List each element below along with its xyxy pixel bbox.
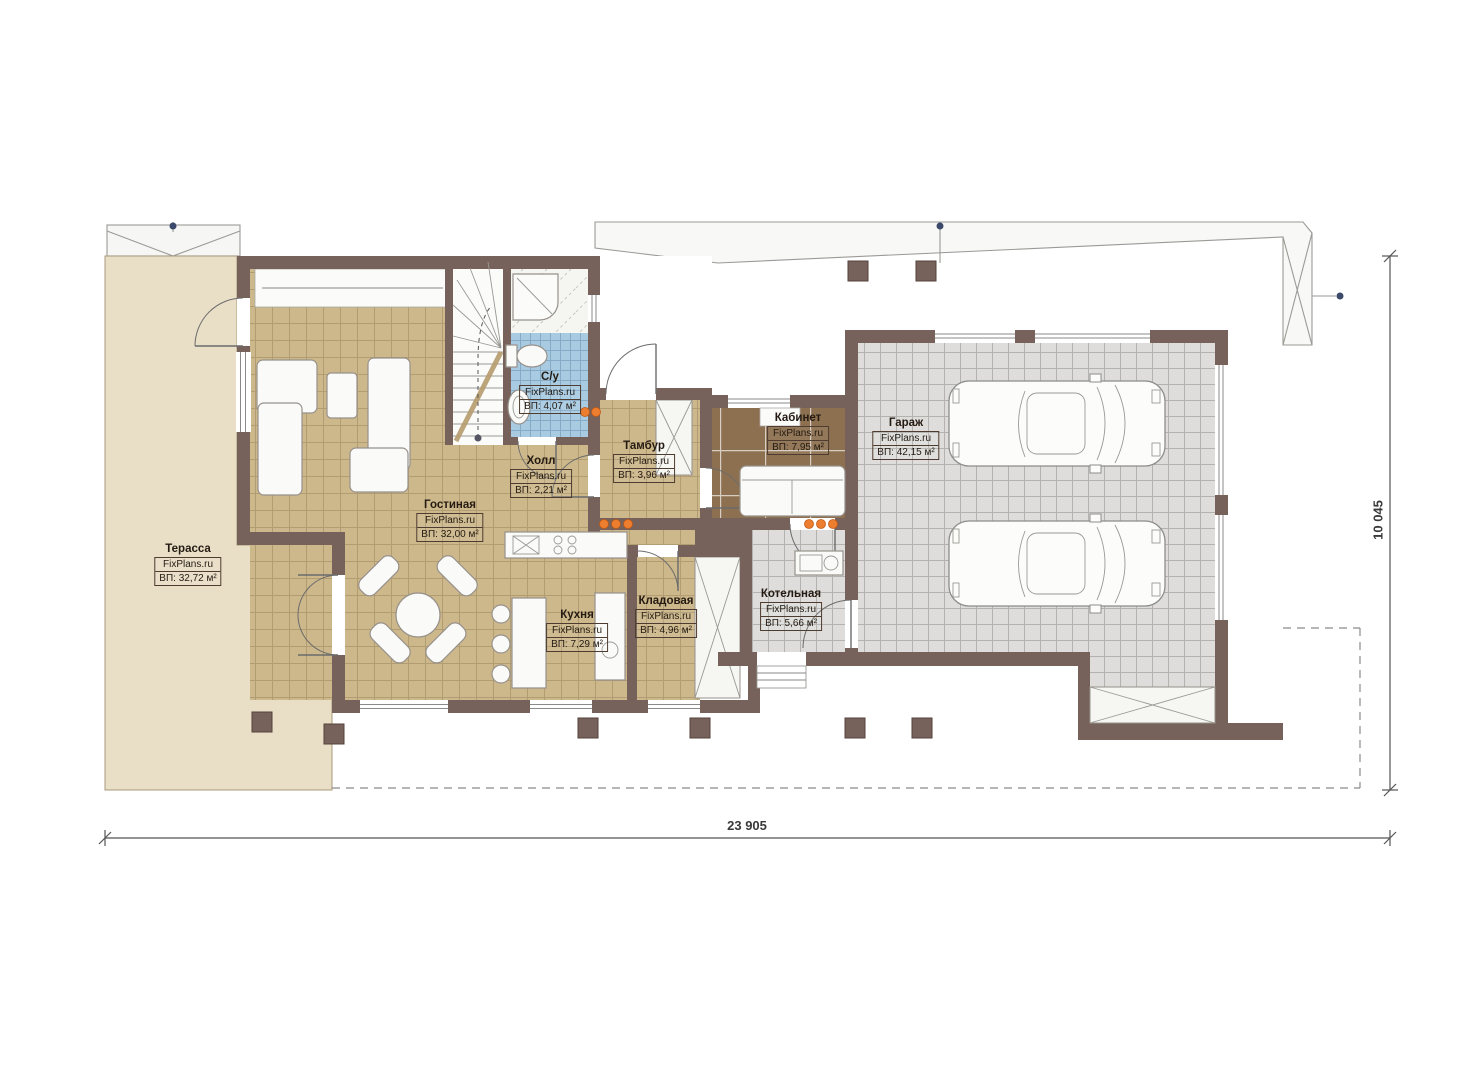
room-area: ВП: 7,95 м² [768,441,828,454]
room-name: Гостиная [416,499,483,512]
dining-table [396,593,440,637]
watermark-text: FixPlans.ru [417,514,482,528]
toilet [517,345,547,367]
room-area: ВП: 3,96 м² [614,469,674,482]
room-label-vestibule: Тамбур FixPlans.ru ВП: 3,96 м² [613,440,675,483]
bar-stool [492,635,510,653]
room-area: ВП: 32,00 м² [417,528,482,541]
window-garage-right-2 [1215,515,1228,620]
room-label-terrace: Терасса FixPlans.ru ВП: 32,72 м² [154,543,221,586]
watermark-text: FixPlans.ru [873,432,938,446]
car-2 [949,514,1165,613]
room-name: Кухня [546,609,608,622]
car-1 [949,374,1165,473]
room-label-boiler: Котельная FixPlans.ru ВП: 5,66 м² [760,588,822,631]
watermark-text: FixPlans.ru [520,386,580,400]
room-label-garage: Гараж FixPlans.ru ВП: 42,15 м² [872,417,939,460]
room-label-kitchen: Кухня FixPlans.ru ВП: 7,29 м² [546,609,608,652]
room-area: ВП: 32,72 м² [155,572,220,585]
room-area: ВП: 2,21 м² [511,484,571,497]
watermark-text: FixPlans.ru [511,470,571,484]
window-porch [588,295,600,322]
roof-outline-left [107,222,240,256]
kitchen-island [512,598,546,688]
room-label-office: Кабинет FixPlans.ru ВП: 7,95 м² [767,412,829,455]
floor-plan-drawing [0,0,1474,1080]
window-bottom-3 [648,700,700,713]
coffee-table [327,373,357,418]
room-name: Кабинет [767,412,829,425]
boiler-equipment [795,551,843,575]
window-bottom-2 [530,700,592,713]
room-name: Терасса [154,543,221,556]
window-office [728,395,790,408]
watermark-text: FixPlans.ru [614,455,674,469]
room-area: ВП: 4,07 м² [520,400,580,413]
watermark-text: FixPlans.ru [761,603,821,617]
window-living-left [236,352,251,432]
toilet-tank [506,345,517,367]
window-bottom-1 [360,700,448,713]
window-garage-top-2 [1035,330,1150,343]
room-name: С/у [519,371,581,384]
room-area: ВП: 4,96 м² [636,624,696,637]
dimension-right: 10 045 [1371,500,1386,540]
watermark-text: FixPlans.ru [768,427,828,441]
room-name: Котельная [760,588,822,601]
window-garage-right-1 [1215,365,1228,495]
room-name: Холл [510,455,572,468]
window-garage-top-1 [935,330,1015,343]
watermark-text: FixPlans.ru [155,558,220,572]
boiler-exit-steps [757,652,806,688]
room-area: ВП: 42,15 м² [873,446,938,459]
room-label-living: Гостиная FixPlans.ru ВП: 32,00 м² [416,499,483,542]
room-name: Гараж [872,417,939,430]
watermark-text: FixPlans.ru [547,624,607,638]
dimension-bottom: 23 905 [727,818,767,833]
room-label-bathroom: С/у FixPlans.ru ВП: 4,07 м² [519,371,581,414]
room-area: ВП: 7,29 м² [547,638,607,651]
office-sofa [740,466,845,516]
bar-stool [492,665,510,683]
room-name: Тамбур [613,440,675,453]
room-label-storage: Кладовая FixPlans.ru ВП: 4,96 м² [635,595,697,638]
garage-gate [1090,687,1215,723]
room-label-hall: Холл FixPlans.ru ВП: 2,21 м² [510,455,572,498]
room-name: Кладовая [635,595,697,608]
room-area: ВП: 5,66 м² [761,617,821,630]
bar-stool [492,605,510,623]
floor-plan-page: Терасса FixPlans.ru ВП: 32,72 м² Гостина… [0,0,1474,1080]
watermark-text: FixPlans.ru [636,610,696,624]
